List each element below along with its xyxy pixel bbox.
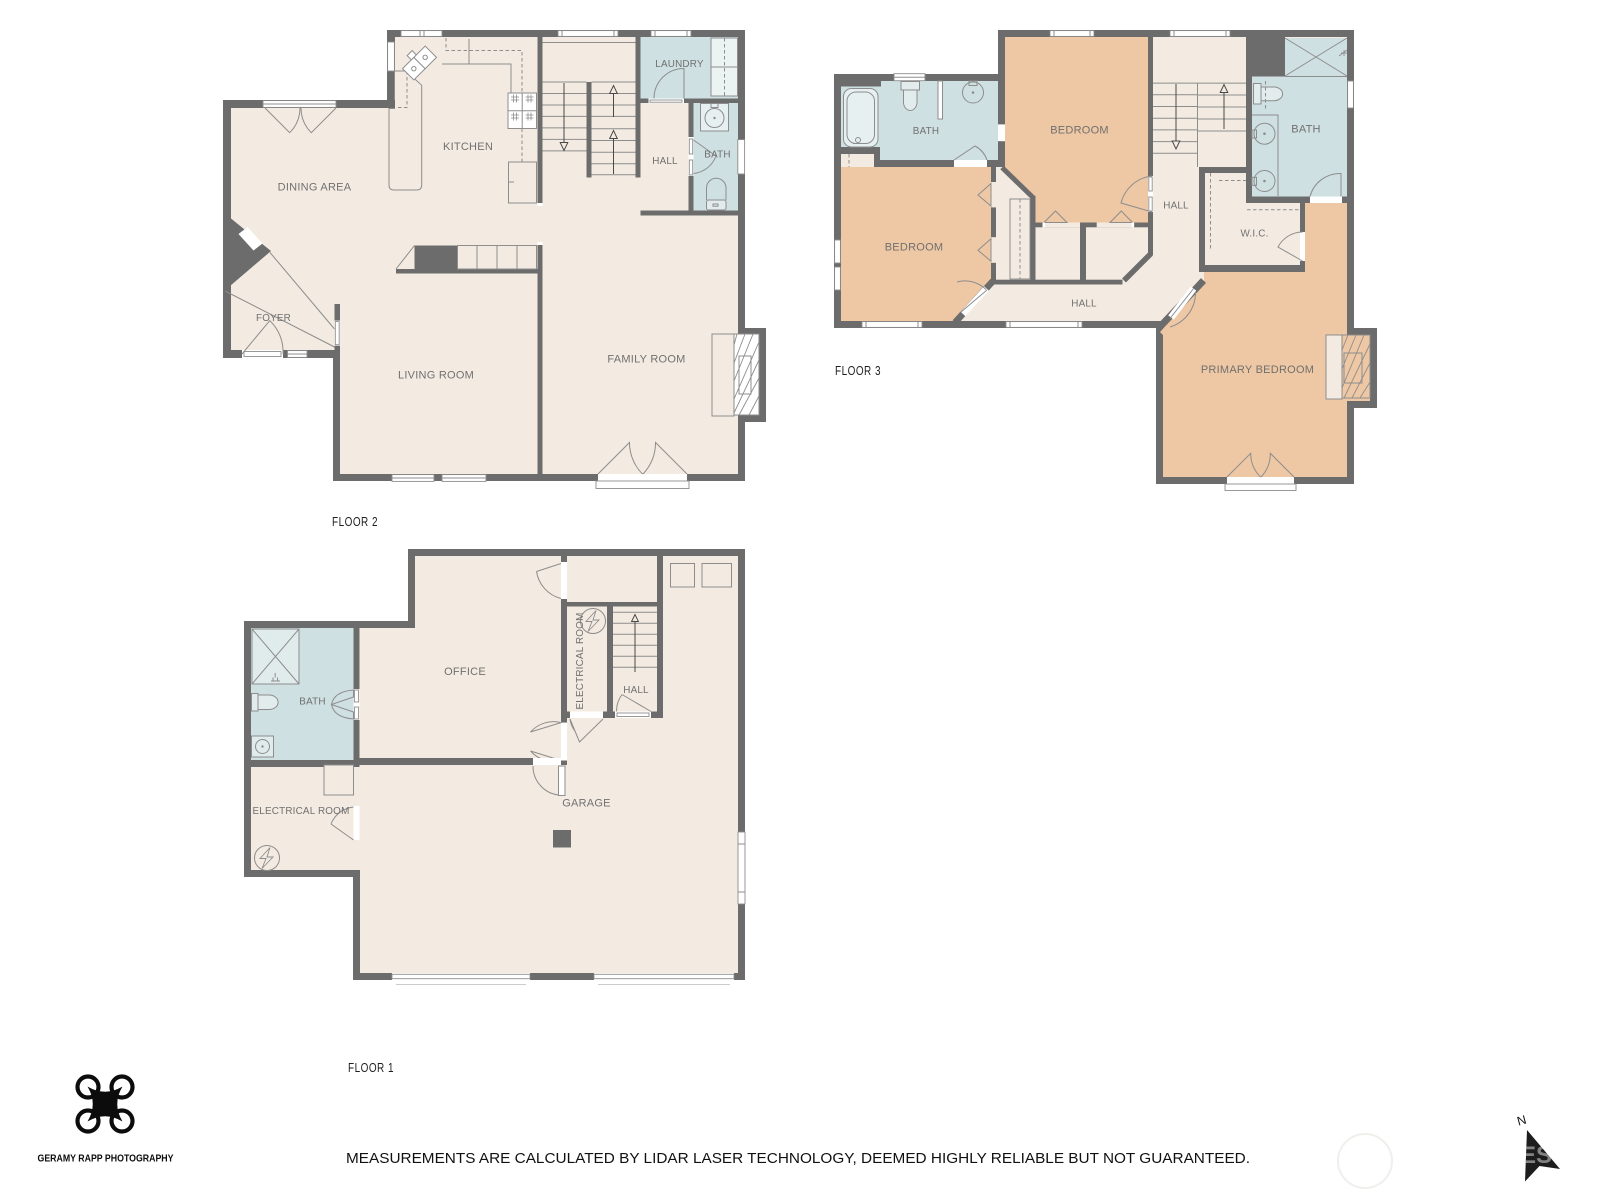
svg-text:LAUNDRY: LAUNDRY — [655, 59, 704, 70]
svg-text:HALL: HALL — [652, 156, 678, 167]
svg-text:ELECTRICAL ROOM: ELECTRICAL ROOM — [575, 612, 586, 709]
svg-text:W.I.C.: W.I.C. — [1240, 229, 1268, 240]
svg-text:DINING AREA: DINING AREA — [278, 182, 352, 194]
svg-text:GERAMY RAPP PHOTOGRAPHY: GERAMY RAPP PHOTOGRAPHY — [38, 1154, 174, 1165]
svg-text:BEDROOM: BEDROOM — [885, 242, 944, 254]
svg-text:FAMILY ROOM: FAMILY ROOM — [607, 354, 685, 366]
svg-text:KITCHEN: KITCHEN — [443, 141, 493, 153]
svg-text:PRIMARY BEDROOM: PRIMARY BEDROOM — [1201, 364, 1314, 376]
svg-text:LIVING ROOM: LIVING ROOM — [398, 370, 474, 382]
svg-text:FLOOR 2: FLOOR 2 — [332, 515, 378, 529]
svg-text:BATH: BATH — [913, 126, 939, 137]
svg-text:HALL: HALL — [623, 685, 649, 696]
svg-text:BEDROOM: BEDROOM — [1050, 125, 1109, 137]
svg-text:FLOOR 3: FLOOR 3 — [835, 364, 881, 378]
svg-text:HALL: HALL — [1163, 201, 1189, 212]
svg-text:OFFICE: OFFICE — [444, 666, 486, 678]
svg-text:ELECTRICAL ROOM: ELECTRICAL ROOM — [252, 806, 349, 817]
svg-text:GARAGE: GARAGE — [562, 798, 611, 810]
svg-text:FLOOR 1: FLOOR 1 — [348, 1061, 394, 1075]
svg-text:BATH: BATH — [704, 150, 730, 161]
svg-text:HALL: HALL — [1071, 299, 1097, 310]
svg-text:FOYER: FOYER — [256, 313, 291, 324]
svg-text:BATH: BATH — [1291, 124, 1321, 136]
svg-text:MEASUREMENTS ARE CALCULATED BY: MEASUREMENTS ARE CALCULATED BY LIDAR LAS… — [346, 1151, 1250, 1167]
svg-text:BATH: BATH — [299, 697, 325, 708]
